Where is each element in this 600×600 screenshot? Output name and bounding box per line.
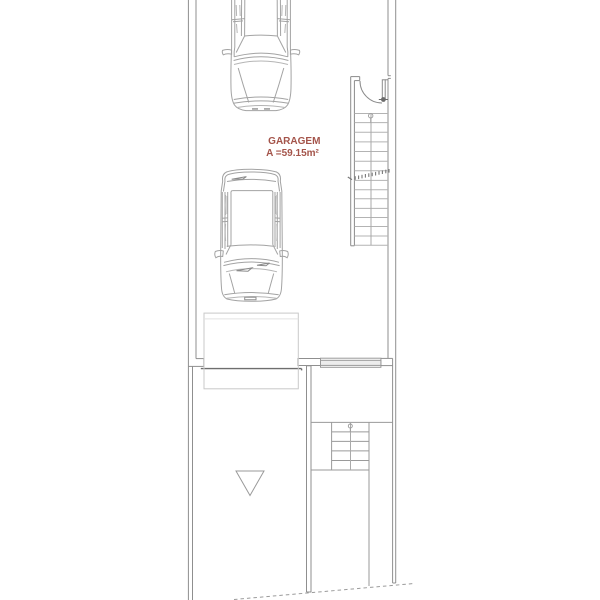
svg-text:GARAGEM: GARAGEM bbox=[268, 136, 320, 147]
svg-text:A =59.15m²: A =59.15m² bbox=[266, 148, 319, 159]
